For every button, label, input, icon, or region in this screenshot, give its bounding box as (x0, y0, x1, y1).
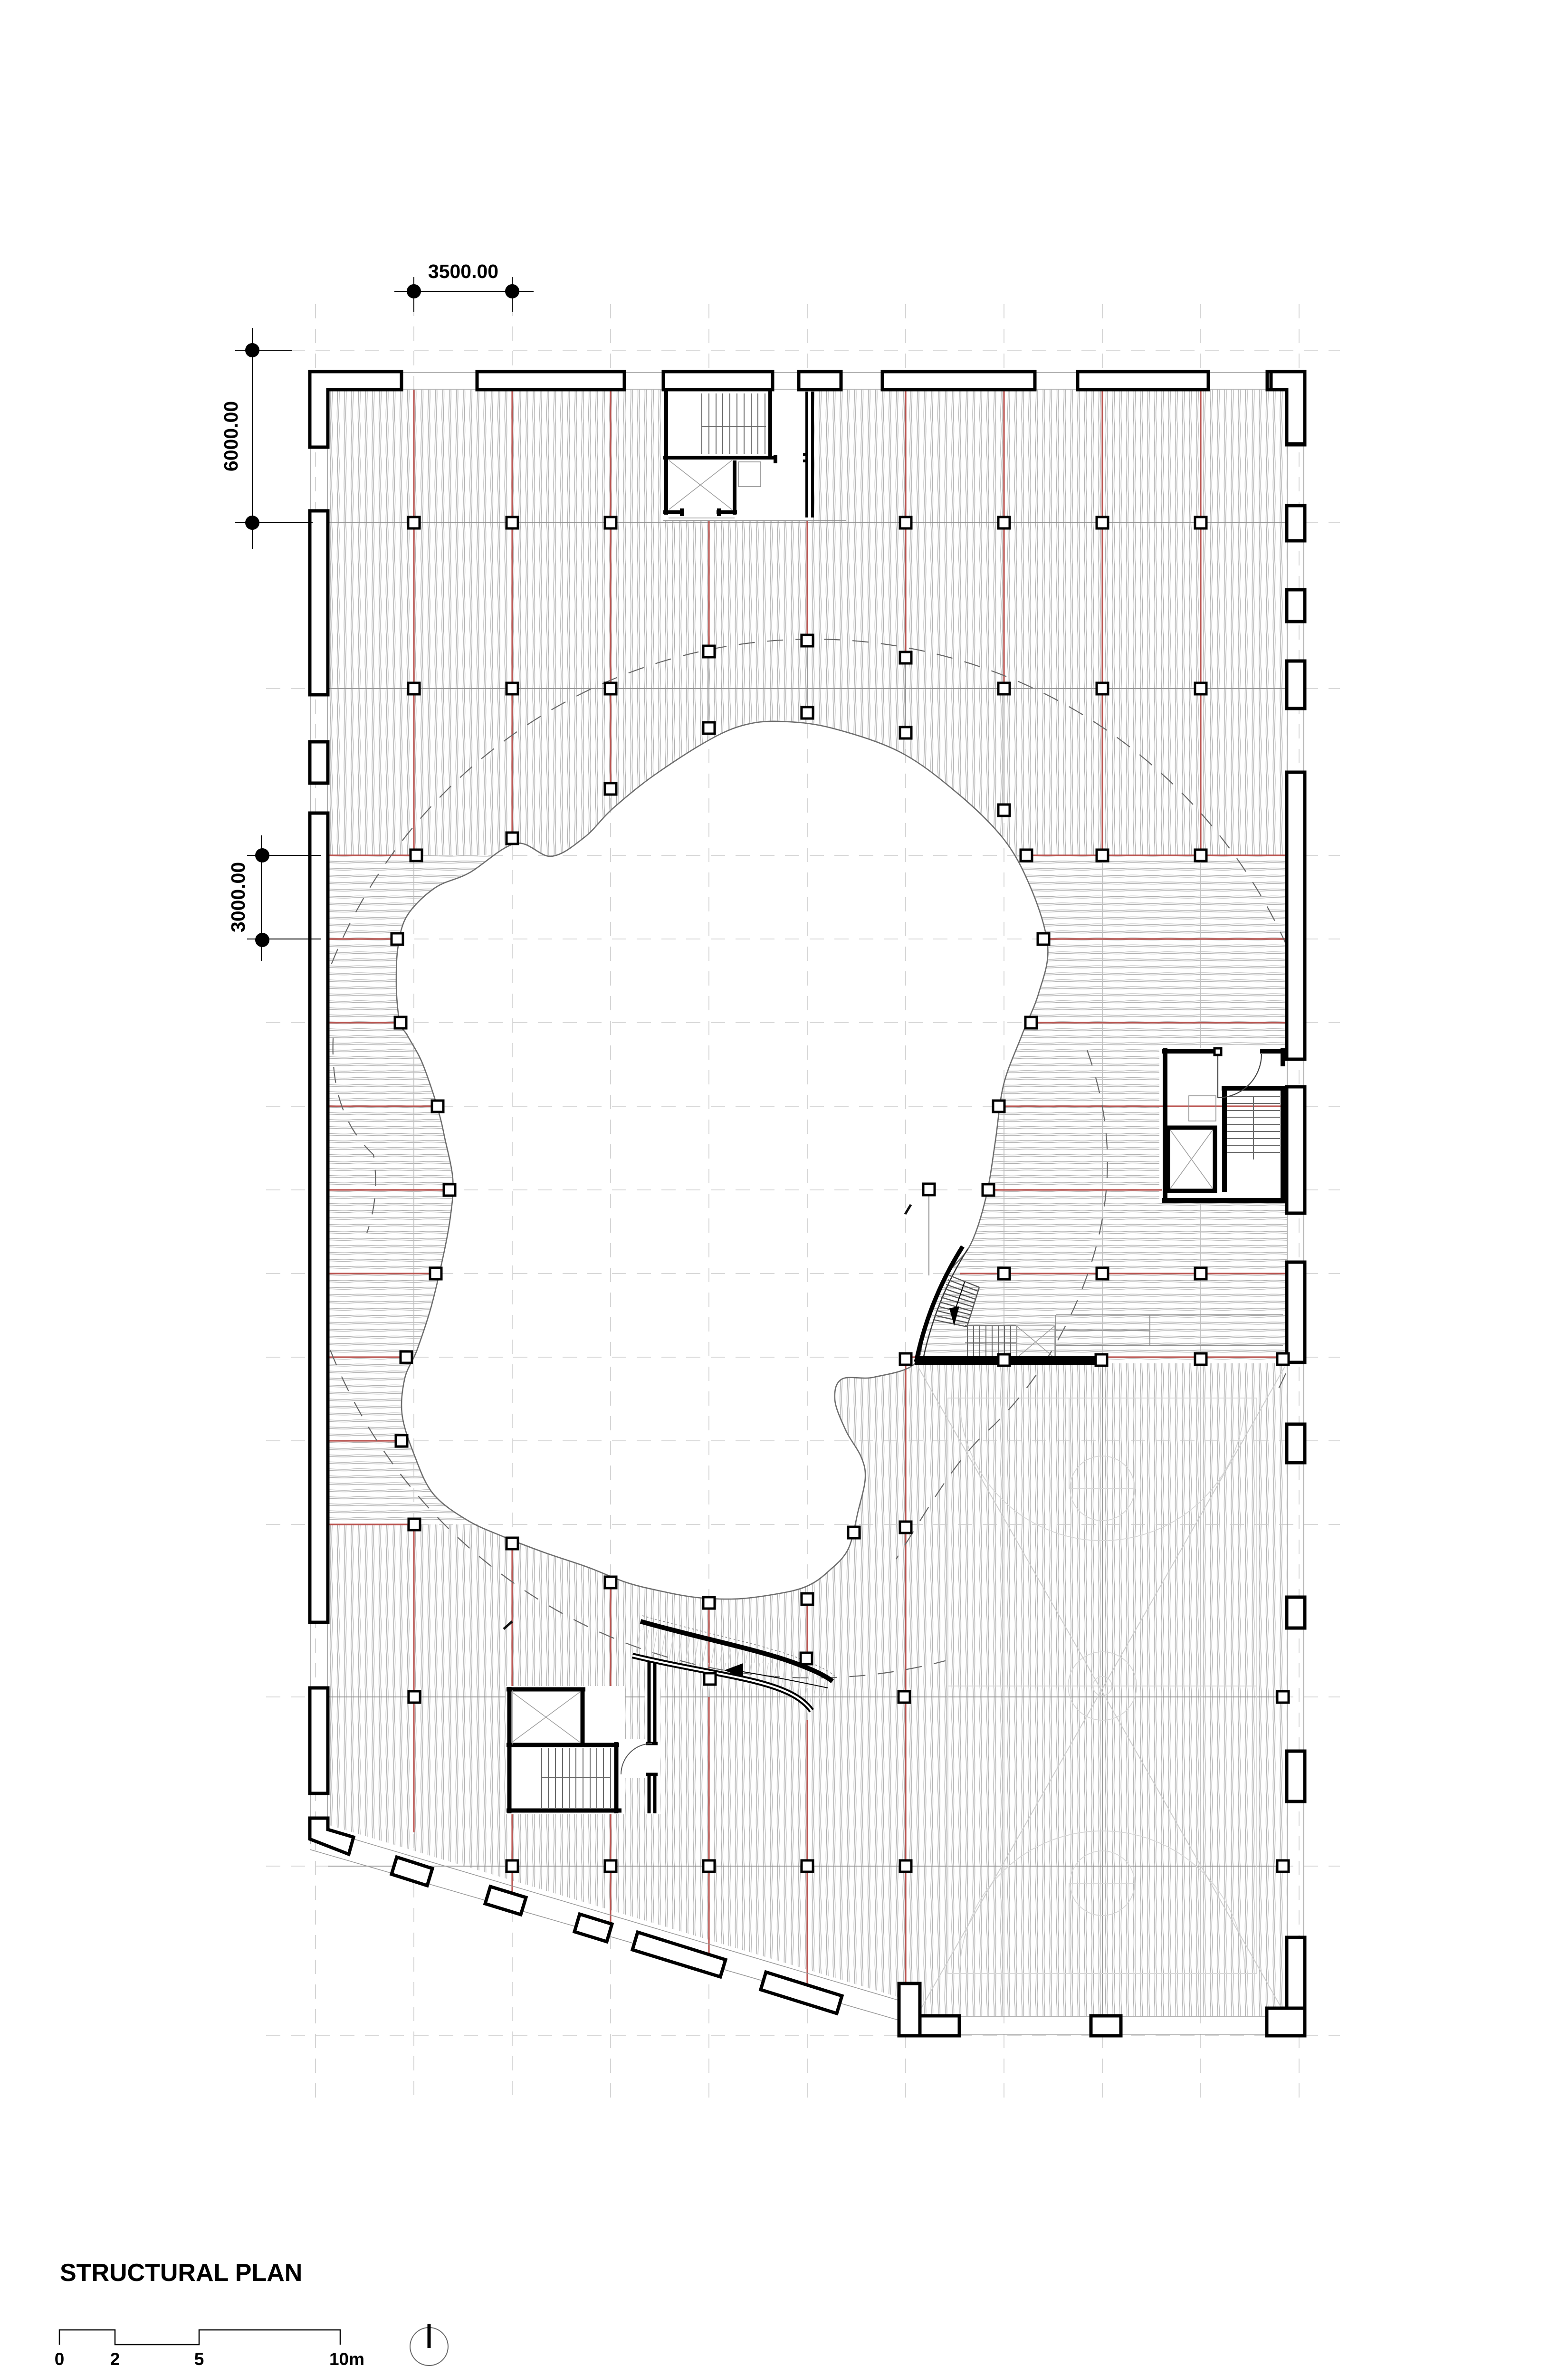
svg-text:2: 2 (110, 2349, 120, 2369)
svg-text:10m: 10m (329, 2349, 364, 2369)
svg-text:5: 5 (194, 2349, 204, 2369)
svg-text:3000.00: 3000.00 (227, 862, 249, 932)
svg-text:3500.00: 3500.00 (428, 260, 498, 282)
svg-text:0: 0 (55, 2349, 65, 2369)
svg-text:6000.00: 6000.00 (220, 401, 242, 471)
svg-text:STRUCTURAL PLAN: STRUCTURAL PLAN (60, 2259, 302, 2287)
